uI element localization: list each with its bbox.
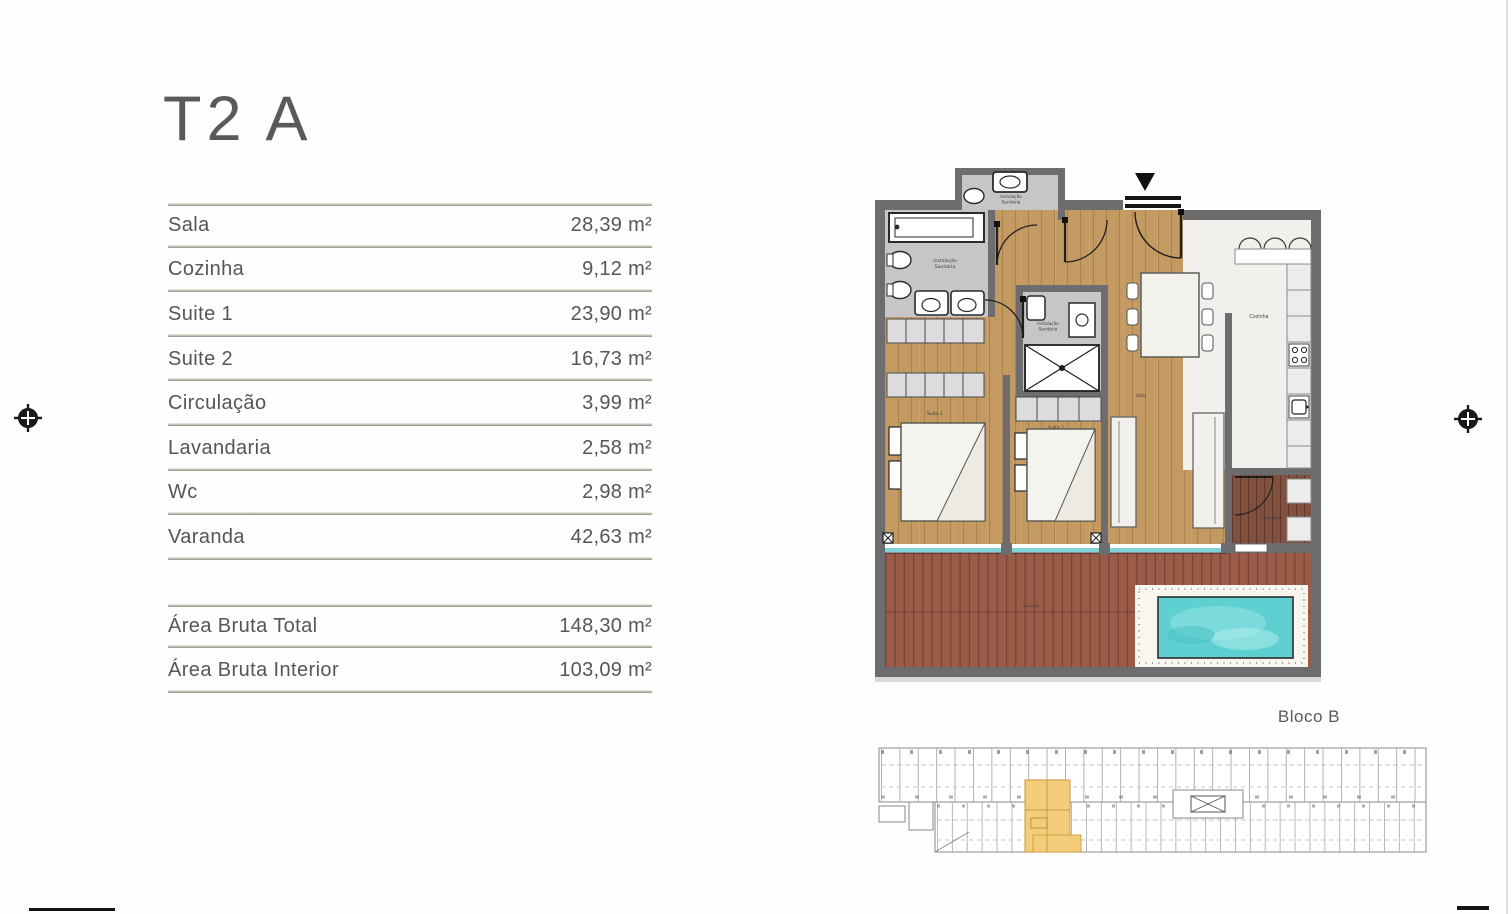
- room-label: Instalação: [1037, 321, 1059, 326]
- pillow: [1015, 465, 1027, 491]
- room-label: Sala: [1136, 393, 1146, 399]
- total-label: Área Bruta Interior: [168, 659, 339, 682]
- room-label: Sanitária: [1039, 327, 1058, 332]
- brochure-page: T2 A Sala 28,39 m² Cozinha 9,12 m² Suite…: [0, 0, 1511, 914]
- room-label: Lavandaria: [1261, 515, 1282, 520]
- room-label: Sanitária: [1002, 200, 1021, 205]
- site-plan-lobby: [1173, 790, 1243, 818]
- table-row-total: Área Bruta Total 148,30 m²: [168, 604, 652, 649]
- page-title: T2 A: [163, 88, 313, 151]
- table-row: Suite 1 23,90 m²: [168, 292, 652, 337]
- room-label: Instalação: [1000, 194, 1022, 199]
- sink: [1027, 296, 1045, 320]
- site-key-plan: [873, 740, 1433, 860]
- room-area-value: 2,58 m²: [582, 437, 652, 460]
- room-area-value: 3,99 m²: [582, 392, 652, 415]
- crop-mark: [29, 908, 115, 911]
- room-label: Suite 2: [168, 348, 233, 371]
- room-label: Sala: [168, 214, 210, 237]
- total-value: 148,30 m²: [559, 615, 652, 638]
- site-plan-lower-band: [879, 802, 1426, 852]
- table-row: Circulação 3,99 m²: [168, 381, 652, 426]
- sofa: [1111, 417, 1136, 527]
- site-plan-upper-band: [879, 748, 1426, 802]
- pillow: [889, 461, 901, 489]
- room-label: Varanda: [168, 526, 245, 549]
- table-row: Cozinha 9,12 m²: [168, 248, 652, 293]
- room-label: Lavandaria: [168, 437, 271, 460]
- floor-plan: Instalação Sanitária Instalação Sanitári…: [873, 165, 1333, 685]
- dining-table: [1141, 273, 1199, 357]
- room-area-value: 16,73 m²: [571, 348, 652, 371]
- room-label: Cozinha: [168, 258, 244, 281]
- sofa: [1193, 413, 1224, 528]
- table-row-total: Área Bruta Interior 103,09 m²: [168, 648, 652, 693]
- kitchen-sink: [1289, 396, 1309, 418]
- table-row: Wc 2,98 m²: [168, 471, 652, 516]
- toilet: [964, 189, 984, 204]
- block-label: Bloco B: [1180, 707, 1340, 727]
- room-label: Suite 1: [927, 411, 943, 417]
- room-label: Wc: [168, 481, 198, 504]
- toilet: [1069, 303, 1095, 337]
- pillow: [1015, 433, 1027, 459]
- room-label: Cozinha: [1249, 314, 1268, 320]
- table-row: Suite 2 16,73 m²: [168, 337, 652, 382]
- room-label: Circulação: [168, 392, 266, 415]
- room-area-value: 42,63 m²: [571, 526, 652, 549]
- table-row: Sala 28,39 m²: [168, 203, 652, 248]
- sink: [993, 172, 1027, 192]
- total-label: Área Bruta Total: [168, 615, 317, 638]
- page-edge-line: [1506, 0, 1508, 914]
- registration-mark-icon: [13, 403, 43, 433]
- total-value: 103,09 m²: [559, 659, 652, 682]
- totals-section: Área Bruta Total 148,30 m² Área Bruta In…: [168, 604, 652, 693]
- pillow: [889, 427, 901, 455]
- room-area-value: 28,39 m²: [571, 214, 652, 237]
- bathtub: [889, 213, 984, 242]
- pool: [1135, 585, 1308, 667]
- table-row: Lavandaria 2,58 m²: [168, 426, 652, 471]
- room-label: Instalação: [933, 258, 957, 264]
- room-area-value: 9,12 m²: [582, 258, 652, 281]
- room-label: Sanitária: [935, 263, 956, 270]
- room-label: Suite 1: [168, 303, 233, 326]
- room-area-value: 2,98 m²: [582, 481, 652, 504]
- room-area-value: 23,90 m²: [571, 303, 652, 326]
- crop-mark: [1457, 906, 1489, 910]
- table-row: Varanda 42,63 m²: [168, 515, 652, 560]
- entry-arrow-icon: [1135, 173, 1155, 191]
- room-label: Varanda: [1023, 603, 1039, 608]
- registration-mark-icon: [1453, 404, 1483, 434]
- stove: [1289, 344, 1309, 366]
- area-table: Sala 28,39 m² Cozinha 9,12 m² Suite 1 23…: [168, 203, 652, 693]
